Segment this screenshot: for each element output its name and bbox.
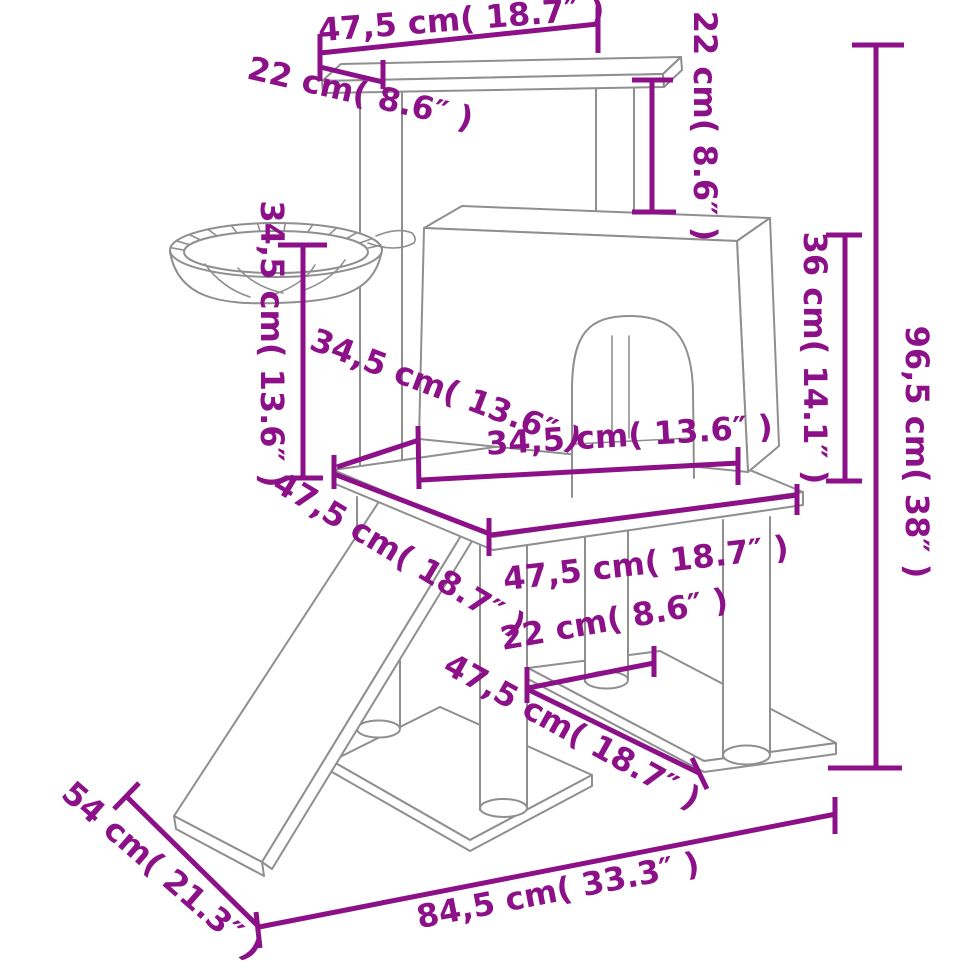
dimension-base-overall-width: 84,5 cm( 33.3″ ) xyxy=(256,797,836,948)
dimension-line xyxy=(828,45,904,768)
dimension-house-height: 36 cm( 14.1″ ) xyxy=(796,232,862,485)
upper-left-post xyxy=(360,91,402,492)
upper-right-post xyxy=(596,88,634,216)
dimension-top-level-height: 22 cm( 8.6″ ) xyxy=(632,11,724,242)
dimension-label: 36 cm( 14.1″ ) xyxy=(796,232,834,485)
dimension-line xyxy=(632,80,676,212)
dimension-label: 84,5 cm( 33.3″ ) xyxy=(413,844,702,936)
diagram-canvas: 47,5 cm( 18.7″ ) 22 cm( 8.6″ ) 22 cm( 8.… xyxy=(0,0,970,971)
dimension-label: 34,5 cm( 13.6″ ) xyxy=(253,200,291,487)
dimension-label: 22 cm( 8.6″ ) xyxy=(686,11,724,242)
dimension-label: 47,5 cm( 18.7″ ) xyxy=(316,0,605,49)
dimension-label: 96,5 cm( 38″ ) xyxy=(898,326,936,579)
cat-tree-dimension-diagram: 47,5 cm( 18.7″ ) 22 cm( 8.6″ ) 22 cm( 8.… xyxy=(0,0,970,971)
